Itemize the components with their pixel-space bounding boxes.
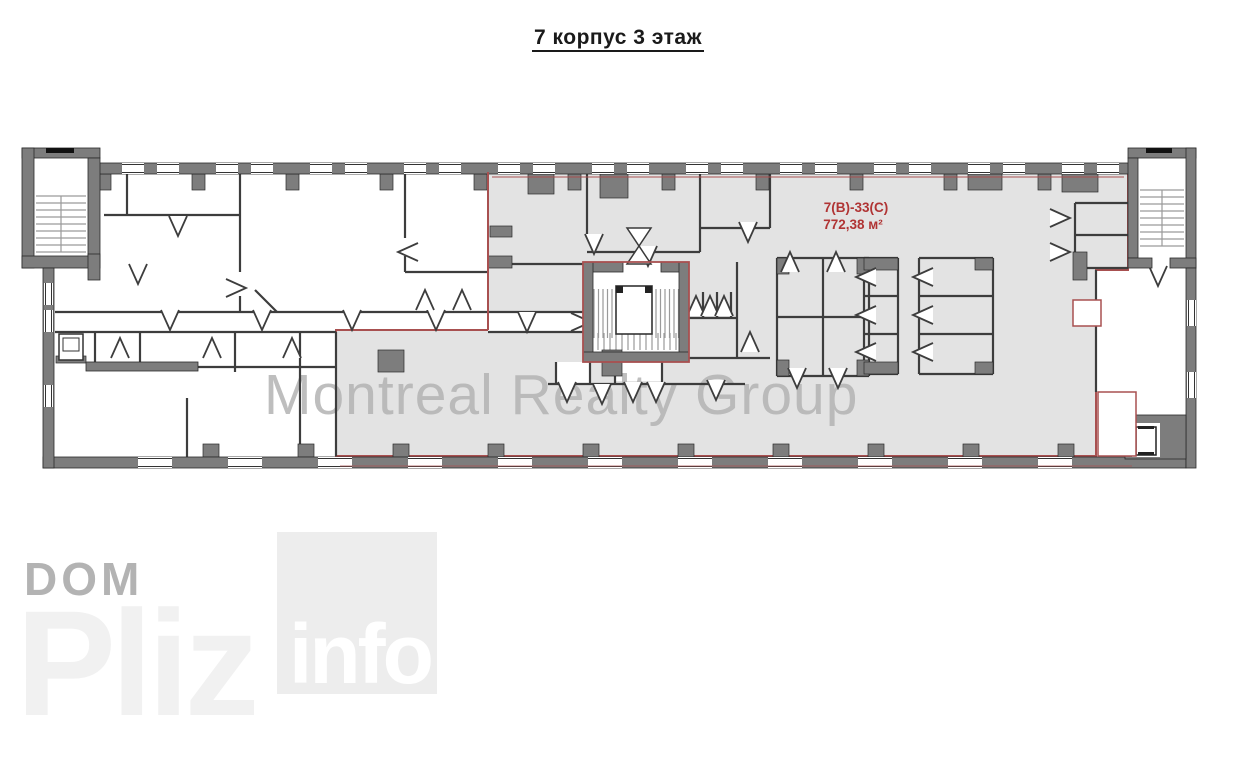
door-swing-icon — [453, 290, 471, 310]
column — [975, 362, 993, 374]
wall-stub — [393, 444, 409, 457]
door-swing-icon — [1149, 266, 1167, 286]
wall-stub — [600, 174, 628, 198]
door-swing-icon — [398, 243, 418, 261]
door-swing-icon — [111, 338, 129, 358]
door-swing-icon — [283, 338, 301, 358]
floor-plan: Montreal Realty Group — [0, 0, 1236, 768]
entry-door-mark — [46, 148, 74, 153]
elevator-door-jamb — [616, 286, 623, 293]
column — [975, 258, 993, 270]
wall-stub — [756, 174, 769, 190]
unit-code-label: 7(В)-33(С) — [824, 200, 889, 215]
watermark-text: Montreal Realty Group — [264, 363, 858, 427]
elevator-shaft — [616, 286, 652, 334]
wall-stub — [568, 174, 581, 190]
column — [378, 350, 404, 372]
door-swing-icon — [203, 338, 221, 358]
small-room-outline — [1098, 392, 1136, 456]
wall — [88, 254, 100, 280]
column — [864, 362, 898, 374]
service-fixture — [1136, 427, 1156, 455]
wall-stub — [944, 174, 957, 190]
column — [864, 258, 898, 270]
wall-stub — [380, 174, 393, 190]
core-wall — [583, 352, 689, 362]
wall-stub — [488, 256, 512, 268]
wall-stub — [850, 174, 863, 190]
column — [777, 360, 789, 376]
stairwell-right-wall — [1128, 158, 1138, 258]
entry-door-mark — [1146, 148, 1172, 153]
stairwell-left-wall — [88, 158, 100, 256]
wall-stub — [963, 444, 979, 457]
unit-area-label: 772,38 м² — [823, 217, 883, 232]
stairwell-right-wall — [1128, 258, 1152, 268]
core-wall — [679, 262, 689, 362]
wall-stub — [1073, 252, 1087, 280]
wall-stub — [583, 444, 599, 457]
small-room-outline — [1073, 300, 1101, 326]
toilet-fixture-tank — [63, 338, 79, 351]
service-fixture-bar — [1138, 452, 1154, 455]
wall-stub — [192, 174, 205, 190]
wall-stub — [286, 174, 299, 190]
door-swing-icon — [343, 310, 361, 330]
wall-stub — [490, 226, 512, 237]
door-swing-icon — [169, 216, 187, 236]
wall-stub — [203, 444, 219, 457]
wall-stub — [1058, 444, 1074, 457]
elevator-door-jamb — [645, 286, 652, 293]
wall-stub — [488, 444, 504, 457]
stairwell-left-wall — [22, 148, 34, 268]
interior-wall — [255, 290, 277, 312]
page-title: 7 корпус 3 этаж — [532, 26, 704, 52]
stairwell-right-wall — [1170, 258, 1196, 268]
page: 7 корпус 3 этаж Pliz DOM info Montreal R… — [0, 0, 1236, 768]
page-title-row: 7 корпус 3 этаж — [0, 26, 1236, 50]
wall-stub — [662, 174, 675, 190]
service-fixture-bar — [1138, 426, 1154, 429]
wall — [86, 362, 198, 371]
wall-stub — [1038, 174, 1051, 190]
wall-stub — [474, 174, 487, 190]
door-swing-icon — [129, 264, 147, 284]
core-wall — [583, 262, 593, 362]
door-swing-icon — [161, 310, 179, 330]
door-swing-icon — [226, 279, 246, 297]
wall-stub — [773, 444, 789, 457]
wall-stub — [868, 444, 884, 457]
door-swing-icon — [416, 290, 434, 310]
wall — [1186, 268, 1196, 468]
wall-stub — [968, 174, 1002, 190]
wall-stub — [298, 444, 314, 457]
stairwell-right-wall — [1186, 148, 1196, 268]
wall-stub — [678, 444, 694, 457]
door-swing-icon — [427, 310, 445, 330]
door-swing-icon — [253, 310, 271, 330]
